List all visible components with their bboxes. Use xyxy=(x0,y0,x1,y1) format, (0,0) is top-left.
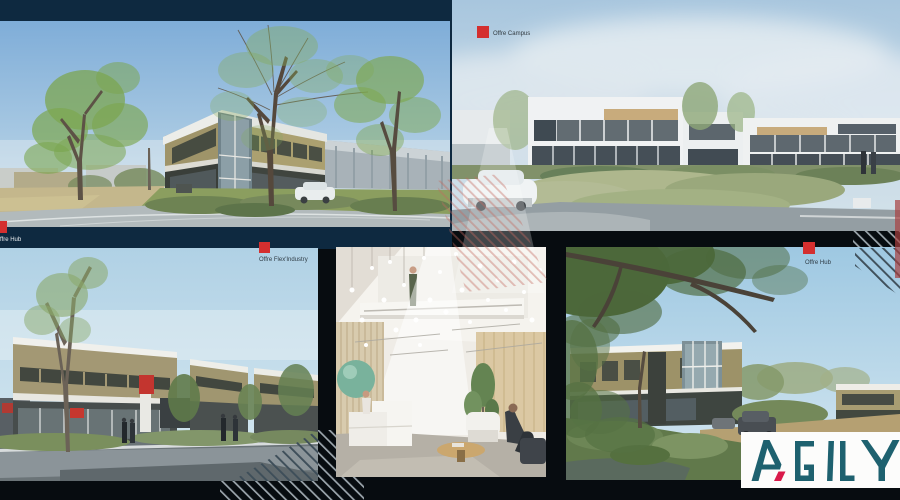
svg-text:Offre Campus: Offre Campus xyxy=(493,31,530,37)
svg-text:ffre Hub: ffre Hub xyxy=(0,237,22,243)
svg-text:Offre Flex'Industry: Offre Flex'Industry xyxy=(259,257,308,263)
svg-text:Offre Hub: Offre Hub xyxy=(805,260,832,266)
